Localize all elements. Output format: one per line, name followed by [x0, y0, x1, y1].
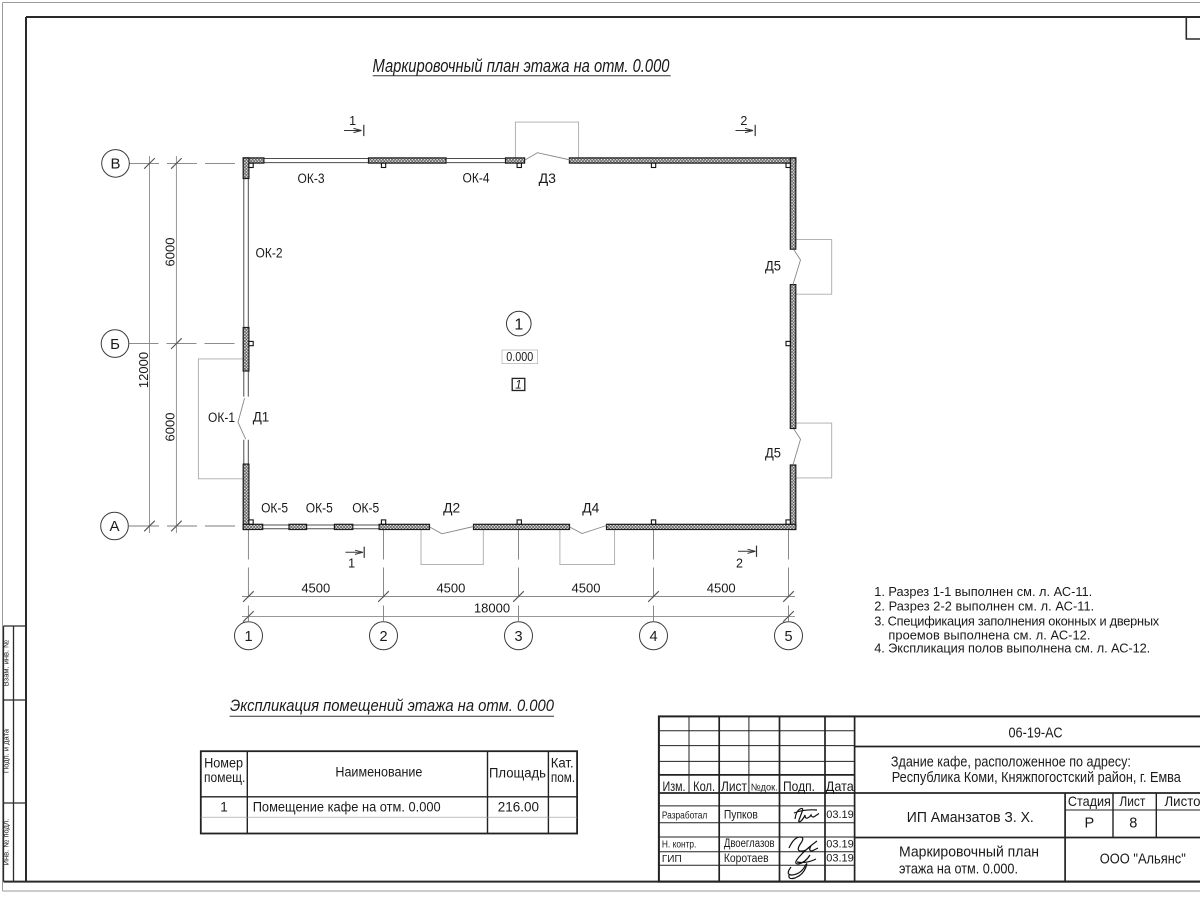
svg-text:Лист: Лист [1119, 793, 1146, 809]
svg-text:ОК-4: ОК-4 [463, 171, 490, 186]
svg-text:Наименование: Наименование [335, 765, 422, 780]
svg-text:ОК-5: ОК-5 [306, 501, 333, 516]
svg-text:Кол.: Кол. [693, 778, 715, 794]
svg-text:Маркировочный план этажа на от: Маркировочный план этажа на отм. 0.000 [373, 56, 670, 76]
svg-text:ОК-1: ОК-1 [208, 410, 235, 425]
svg-text:Подп.: Подп. [783, 778, 815, 794]
svg-text:Р: Р [1084, 816, 1094, 832]
svg-text:Д2: Д2 [443, 501, 460, 516]
svg-text:помещ.: помещ. [204, 770, 245, 785]
svg-text:1: 1 [244, 629, 252, 645]
svg-text:03.19: 03.19 [826, 809, 854, 821]
svg-text:4500: 4500 [572, 581, 601, 596]
svg-text:8: 8 [1129, 816, 1137, 832]
svg-text:4500: 4500 [301, 581, 330, 596]
svg-text:Коротаев: Коротаев [724, 853, 769, 865]
svg-text:03.19: 03.19 [826, 838, 854, 850]
svg-text:5: 5 [784, 629, 792, 645]
svg-text:Изм.: Изм. [663, 778, 686, 794]
svg-text:Дата: Дата [826, 778, 854, 794]
svg-text:Кат.: Кат. [551, 756, 574, 771]
svg-text:Подп. и дата: Подп. и дата [2, 728, 11, 773]
svg-text:Взам. инв. №: Взам. инв. № [2, 640, 11, 686]
svg-text:Разработал: Разработал [662, 809, 708, 821]
svg-text:2: 2 [736, 557, 743, 571]
svg-text:2: 2 [379, 629, 387, 645]
svg-text:4: 4 [649, 629, 657, 645]
svg-text:Н. контр.: Н. контр. [662, 840, 697, 851]
svg-text:2. Разрез 2-2 выполнен см. л.: 2. Разрез 2-2 выполнен см. л. АС-11. [874, 599, 1094, 614]
svg-text:ООО "Альянс": ООО "Альянс" [1100, 851, 1186, 868]
svg-text:ОК-3: ОК-3 [298, 171, 325, 186]
svg-text:0.000: 0.000 [506, 350, 533, 364]
svg-text:пом.: пом. [551, 770, 575, 785]
svg-text:В: В [110, 156, 120, 173]
svg-text:Д5: Д5 [765, 445, 781, 460]
svg-text:Пупков: Пупков [724, 810, 758, 822]
svg-text:4500: 4500 [436, 581, 465, 596]
svg-text:А: А [109, 518, 119, 535]
svg-text:ИП Аманзатов З. Х.: ИП Аманзатов З. Х. [907, 809, 1034, 826]
svg-text:Листов: Листов [1165, 793, 1200, 809]
svg-text:3: 3 [514, 629, 522, 645]
svg-text:6000: 6000 [163, 413, 178, 442]
svg-text:18000: 18000 [474, 601, 510, 616]
svg-text:ОК-2: ОК-2 [256, 246, 283, 261]
svg-text:4500: 4500 [707, 581, 736, 596]
svg-text:06-19-АС: 06-19-АС [1009, 725, 1063, 742]
svg-text:ОК-5: ОК-5 [352, 501, 379, 516]
svg-text:Д1: Д1 [253, 409, 270, 424]
svg-text:1: 1 [349, 114, 356, 128]
svg-text:3. Спецификация заполнения око: 3. Спецификация заполнения оконных и две… [874, 613, 1160, 628]
svg-text:Номер: Номер [204, 756, 243, 771]
svg-text:2: 2 [740, 114, 747, 128]
svg-text:Двоеглазов: Двоеглазов [724, 838, 775, 850]
svg-text:№док.: №док. [751, 782, 778, 793]
svg-text:Республика Коми, Княжпогостски: Республика Коми, Княжпогостский район, г… [892, 770, 1182, 786]
svg-text:этажа на отм. 0.000.: этажа на отм. 0.000. [899, 861, 1018, 878]
svg-text:Здание кафе, расположенное по: Здание кафе, расположенное по адресу: [891, 755, 1131, 771]
svg-text:Д3: Д3 [539, 171, 556, 186]
svg-text:1: 1 [514, 316, 523, 333]
svg-text:1. Разрез 1-1 выполнен см. л.: 1. Разрез 1-1 выполнен см. л. АС-11. [874, 584, 1092, 599]
svg-text:1: 1 [348, 557, 355, 571]
svg-text:Д5: Д5 [765, 258, 781, 273]
svg-text:Лист: Лист [721, 778, 748, 794]
svg-text:12000: 12000 [136, 352, 151, 388]
svg-text:4. Экспликация полов выполнена: 4. Экспликация полов выполнена см. л. АС… [874, 641, 1150, 656]
svg-text:Инв. № подл.: Инв. № подл. [2, 819, 11, 866]
svg-text:Д4: Д4 [582, 501, 599, 516]
svg-text:216.00: 216.00 [498, 800, 539, 815]
svg-text:Площадь: Площадь [489, 765, 546, 780]
svg-text:Маркировочный план: Маркировочный план [899, 844, 1039, 861]
svg-text:03.19: 03.19 [826, 853, 854, 865]
svg-text:Помещение кафе на отм. 0.000: Помещение кафе на отм. 0.000 [253, 800, 441, 815]
svg-text:ГИП: ГИП [662, 854, 682, 865]
svg-text:Стадия: Стадия [1068, 793, 1111, 809]
svg-text:Б: Б [110, 336, 120, 353]
svg-text:1: 1 [515, 380, 521, 392]
svg-text:6000: 6000 [163, 238, 178, 267]
svg-text:1: 1 [220, 800, 228, 815]
svg-text:Экспликация помещений этажа на: Экспликация помещений этажа на отм. 0.00… [230, 697, 555, 715]
svg-text:ОК-5: ОК-5 [261, 501, 288, 516]
